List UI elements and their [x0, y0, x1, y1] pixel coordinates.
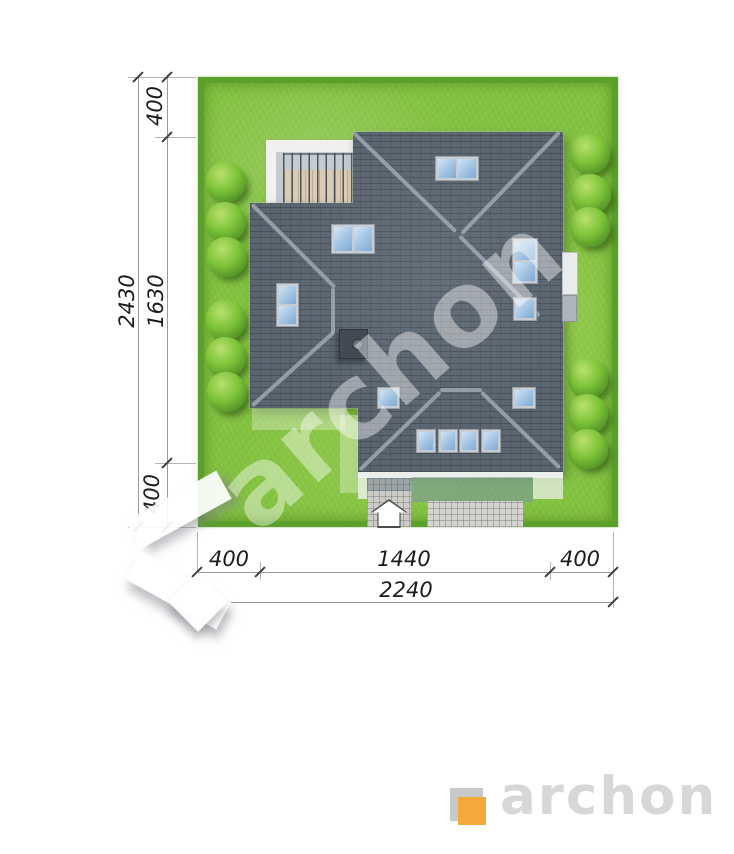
- skylight-pane: [419, 432, 433, 450]
- skylight-pane: [516, 300, 534, 318]
- roof-hip-line: [352, 131, 458, 233]
- skylight-pane: [462, 432, 476, 450]
- side-patio-overlay: [340, 415, 358, 493]
- dim-label-plot-height: 2430: [115, 274, 139, 327]
- archon-logo: archon: [448, 764, 734, 834]
- skylight-window: [513, 297, 537, 321]
- dim-tick: [607, 566, 618, 577]
- dim-extension-line: [613, 532, 614, 608]
- skylight-pane: [515, 390, 533, 406]
- skylight-window-pair: [512, 238, 538, 284]
- bush: [206, 162, 246, 202]
- bush: [568, 358, 608, 398]
- right-facade-panel: [562, 295, 577, 322]
- skylight-window: [416, 429, 436, 453]
- skylight-pane: [354, 227, 372, 251]
- dim-label-top-setback: 400: [143, 86, 167, 126]
- dim-line-plot-width: [197, 602, 613, 603]
- bush: [206, 202, 246, 242]
- dim-tick: [254, 566, 265, 577]
- skylight-window: [481, 429, 501, 453]
- skylight-window: [512, 387, 536, 409]
- skylight-window: [438, 429, 458, 453]
- entrance-arrow-fill: [371, 501, 407, 526]
- bush: [570, 134, 610, 174]
- entrance-arrow-icon: [369, 499, 409, 528]
- bush: [568, 429, 608, 469]
- dim-label-house-depth: 1630: [144, 274, 168, 327]
- dim-line-house-width: [197, 572, 613, 573]
- dim-label-plot-width: 2240: [379, 578, 432, 602]
- logo-mark-orange-square: [458, 797, 486, 825]
- chimney: [339, 329, 368, 359]
- skylight-pane: [484, 432, 498, 450]
- skylight-pane: [458, 159, 476, 178]
- dim-tick: [132, 71, 143, 82]
- skylight-pane: [279, 306, 296, 324]
- bush: [570, 207, 610, 247]
- driveway: [427, 501, 523, 527]
- dim-extension-line: [155, 137, 196, 138]
- west-patio-overlay: [252, 409, 345, 430]
- roof-ridge-line: [440, 388, 482, 392]
- dim-tick: [161, 131, 172, 142]
- skylight-pane: [441, 432, 455, 450]
- dim-label-right-setback: 400: [560, 547, 600, 571]
- skylight-pane: [438, 159, 456, 178]
- dim-extension-line: [550, 562, 551, 580]
- skylight-window-pair: [331, 224, 375, 254]
- dim-label-left-setback: 400: [209, 547, 249, 571]
- skylight-pane: [334, 227, 352, 251]
- right-facade-bay: [562, 252, 578, 295]
- site-plan-canvas: archon 400 2430 1630 400 400 1440 4: [0, 0, 734, 854]
- logo-wordmark: archon: [500, 770, 717, 823]
- dim-tick: [161, 71, 172, 82]
- dim-tick: [607, 596, 618, 607]
- chimney-vent: [352, 339, 363, 350]
- bush: [206, 300, 246, 340]
- skylight-window-pair: [435, 156, 479, 181]
- dim-extension-line: [128, 77, 196, 78]
- skylight-pane: [380, 390, 397, 406]
- skylight-window: [377, 387, 400, 409]
- dim-line-house-depth: [167, 75, 168, 528]
- dim-tick: [161, 457, 172, 468]
- dim-line-plot-height: [138, 75, 139, 528]
- side-terrace-slab: [533, 477, 563, 499]
- dim-tick: [544, 566, 555, 577]
- dim-extension-line: [155, 463, 196, 464]
- dim-label-house-width: 1440: [377, 547, 430, 571]
- bush: [568, 394, 608, 434]
- dim-extension-line: [260, 562, 261, 580]
- roof-hip-line: [251, 203, 337, 289]
- skylight-pane: [279, 286, 296, 304]
- skylight-window-pair: [276, 283, 299, 327]
- roof-hip-line: [460, 131, 561, 235]
- roof-ridge-line: [331, 288, 335, 334]
- skylight-pane: [515, 241, 535, 260]
- porch-shadow-overlay: [412, 477, 533, 502]
- roof-hip-line: [251, 331, 335, 408]
- skylight-window: [459, 429, 479, 453]
- bush: [207, 237, 247, 277]
- bush: [206, 337, 246, 377]
- bush: [207, 372, 247, 412]
- skylight-pane: [515, 262, 535, 281]
